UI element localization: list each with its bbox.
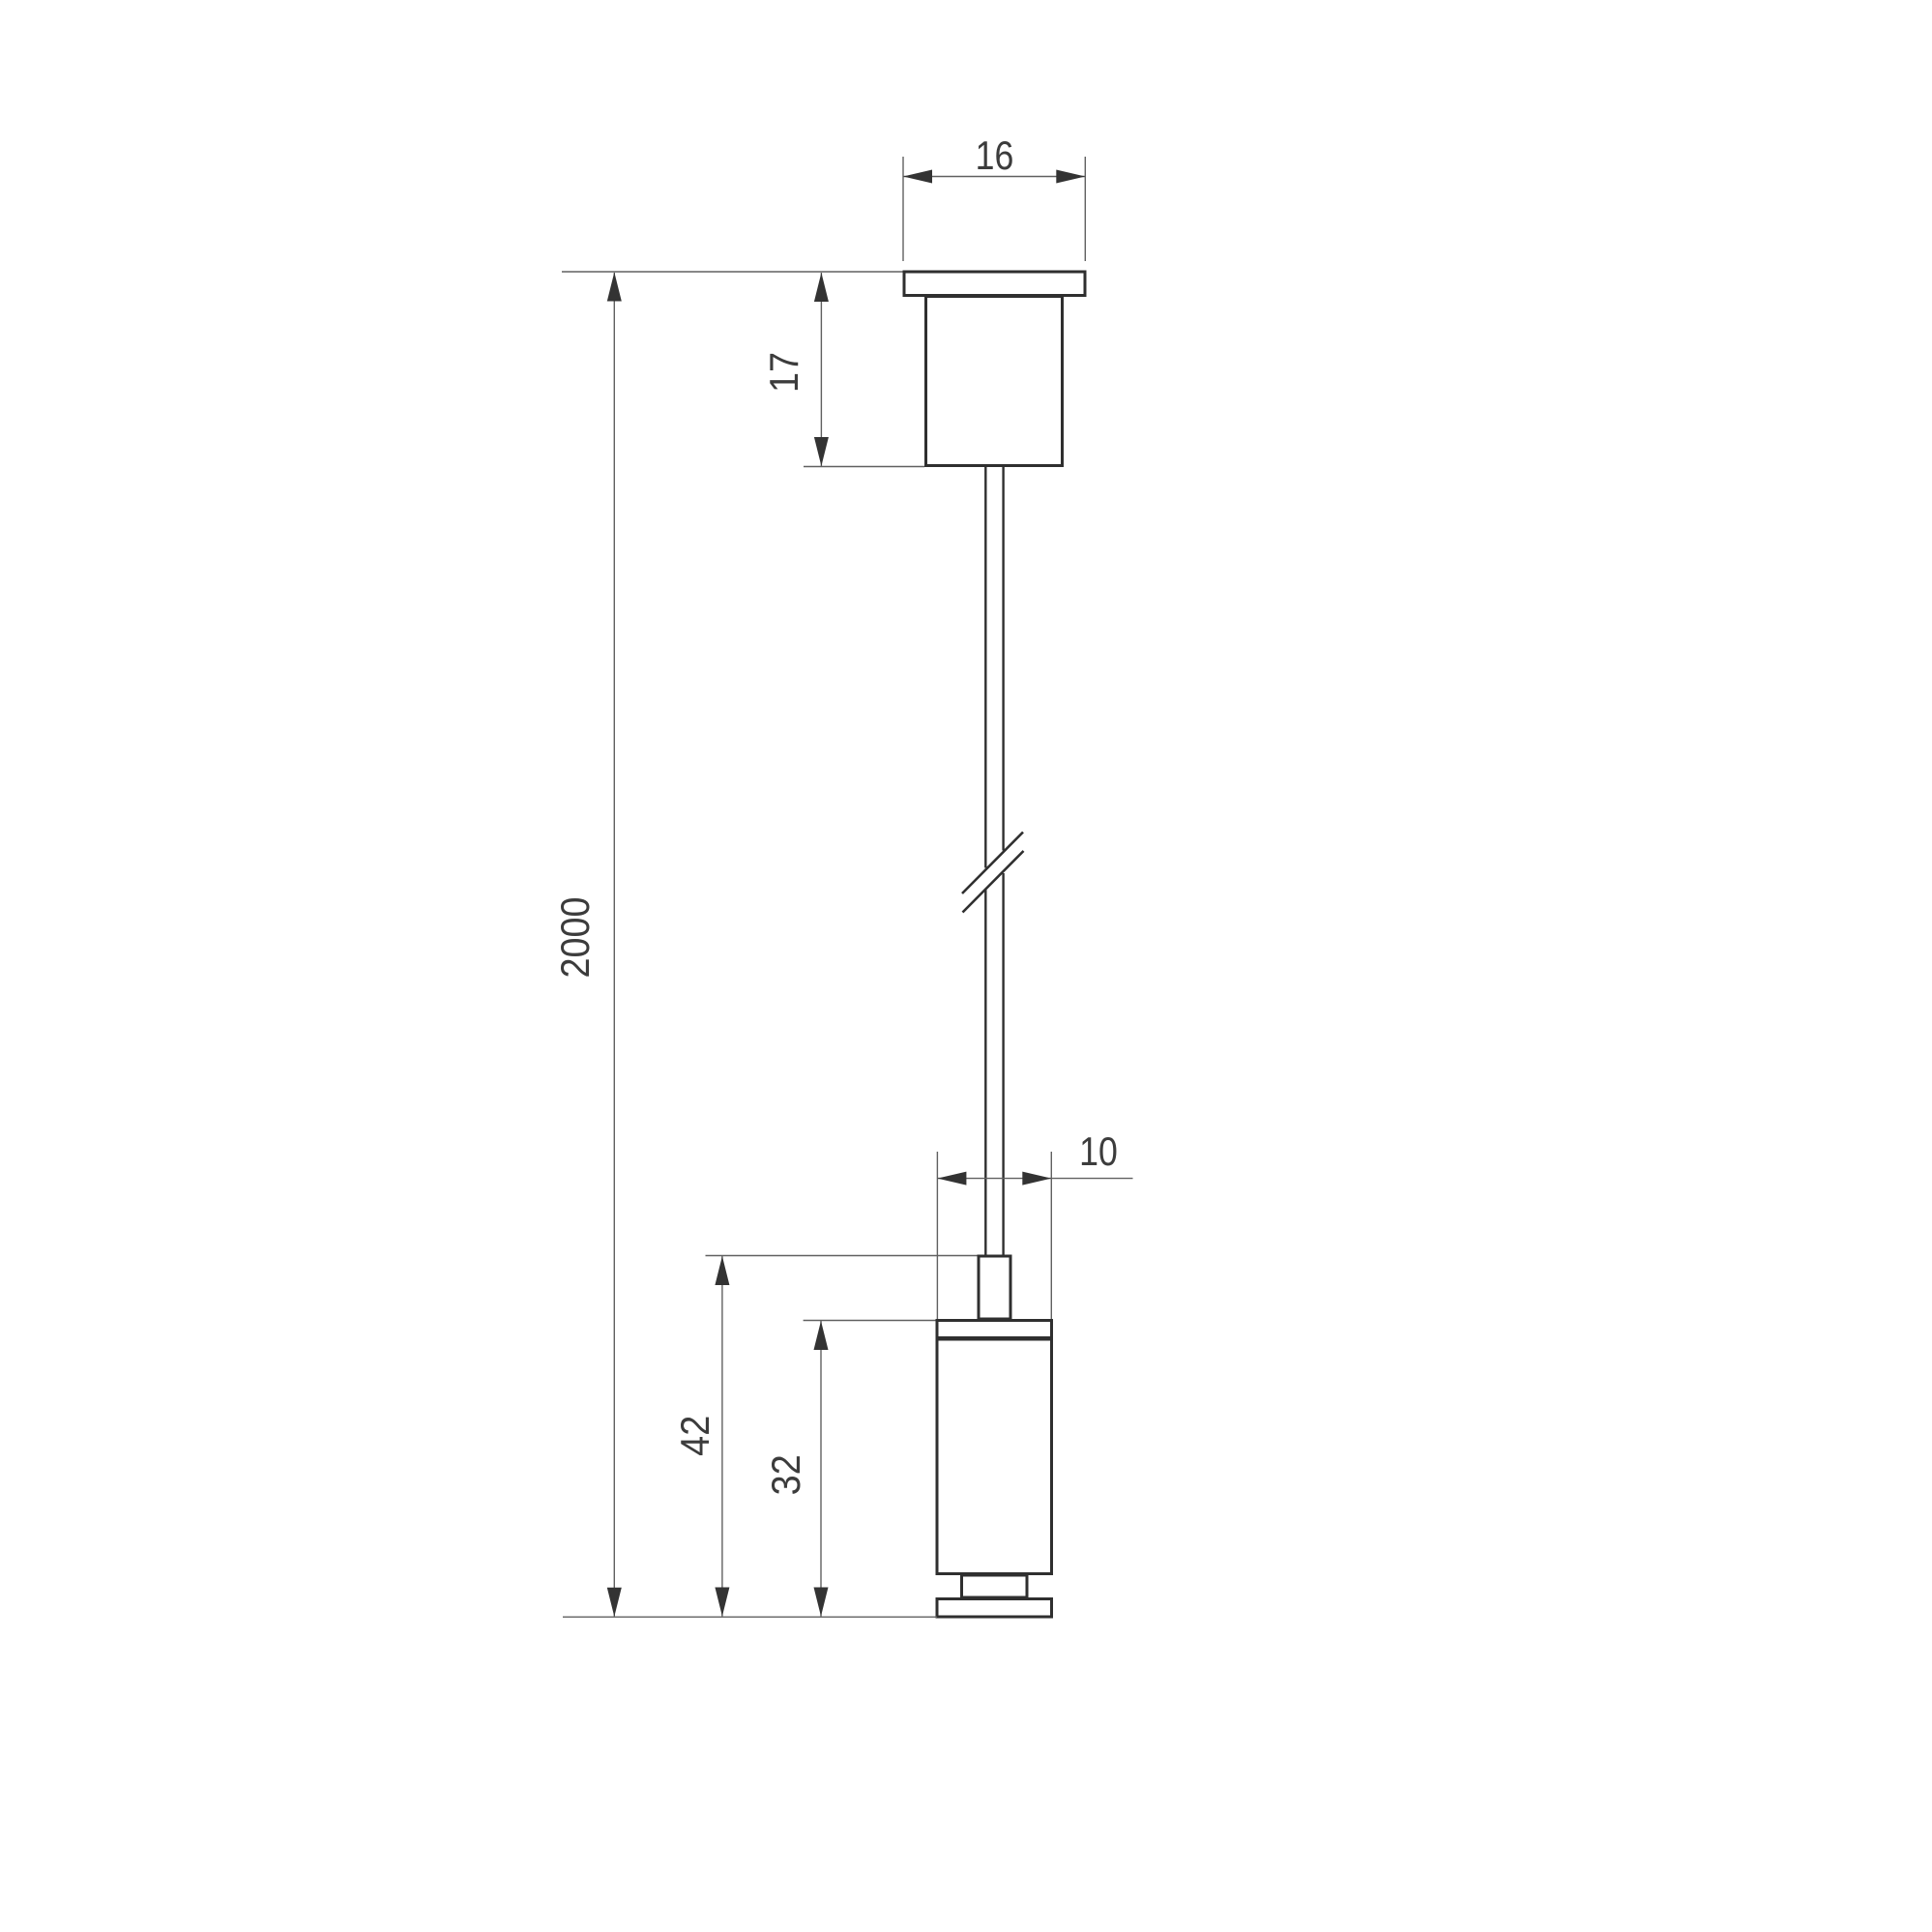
- svg-text:16: 16: [976, 133, 1014, 178]
- svg-text:17: 17: [762, 352, 806, 393]
- svg-text:32: 32: [764, 1454, 808, 1495]
- svg-text:2000: 2000: [553, 896, 598, 978]
- svg-text:10: 10: [1079, 1129, 1118, 1174]
- svg-text:42: 42: [673, 1416, 717, 1456]
